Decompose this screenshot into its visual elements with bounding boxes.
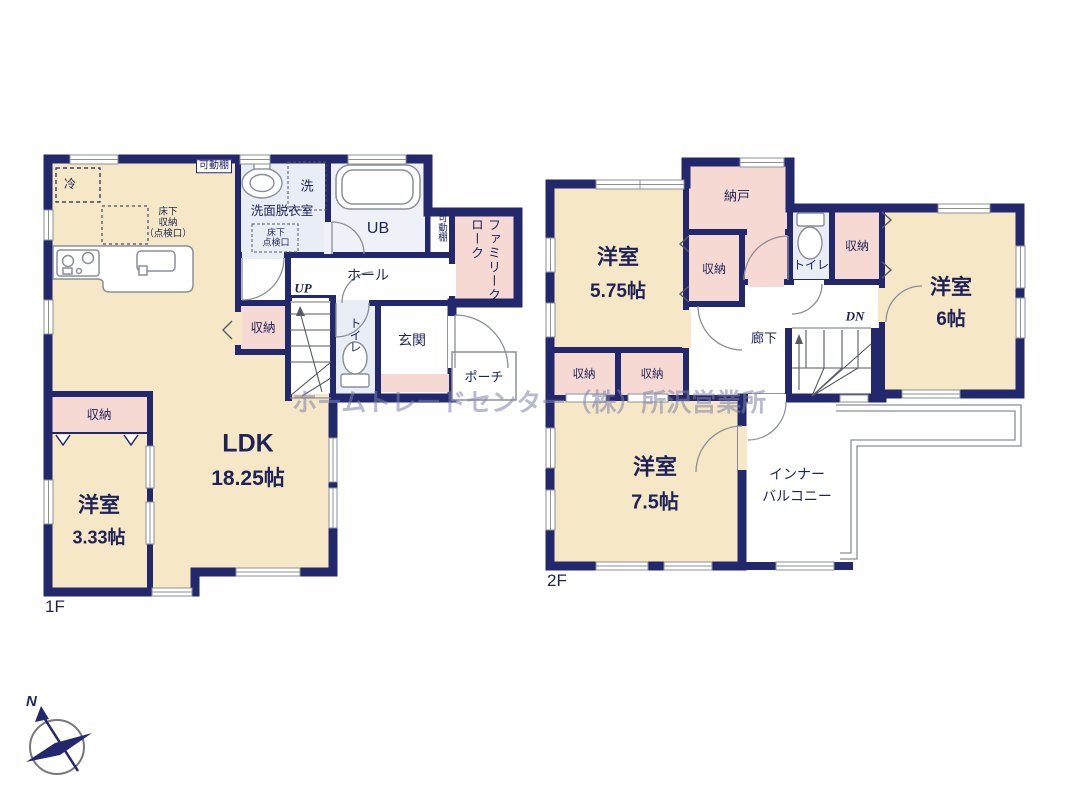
dn-label: DN xyxy=(846,310,865,325)
nando-lower xyxy=(742,232,790,282)
compass-north-label: N xyxy=(26,693,37,710)
closet-c-label: 収納 xyxy=(573,368,596,381)
shelf-side-label: 可動棚 xyxy=(434,213,448,257)
yoshitsu333-name: 洋室 xyxy=(78,494,120,518)
underfloor-line3: （点検口） xyxy=(144,229,192,240)
yoshitsu6-size: 6帖 xyxy=(936,309,966,331)
ldk-name: LDK xyxy=(222,430,273,459)
closet-right-label: 収納 xyxy=(845,240,869,254)
family-cloak-label: ファミリークローク xyxy=(468,218,502,302)
closet-mid-label: 収納 xyxy=(250,321,275,335)
ub-label: UB xyxy=(367,220,389,238)
floor1-label: 1F xyxy=(45,597,65,617)
balcony-line1: インナー xyxy=(762,463,832,485)
balcony-line2: バルコニー xyxy=(762,485,832,507)
floor2-geometry xyxy=(546,158,1025,570)
hall-label: ホール xyxy=(347,267,389,283)
yoshitsu333-closet-label: 収納 xyxy=(86,408,111,422)
inspection-line1: 床下 xyxy=(262,228,289,238)
genkan-label: 玄関 xyxy=(398,332,426,348)
senmen-label: 洗面脱衣室 xyxy=(251,204,314,218)
yoshitsu6-room xyxy=(882,208,1020,394)
floorplan-page: ホームトレードセンター（株）所沢営業所 冷 可動棚 床下 収納 （点検口） 洗 … xyxy=(0,0,1067,800)
yoshitsu333-size: 3.33帖 xyxy=(72,528,125,549)
toilet1f-label: トイレ xyxy=(347,317,364,377)
underfloor-storage-label: 床下 収納 （点検口） xyxy=(144,208,192,241)
laundry-label: 洗 xyxy=(300,180,313,195)
balcony-label: インナー バルコニー xyxy=(762,463,832,507)
bathtub-icon xyxy=(336,165,420,209)
closet-d-label: 収納 xyxy=(641,368,664,381)
balcony-outline xyxy=(836,405,1021,559)
inspection-line2: 点検口 xyxy=(262,238,289,248)
nando-label: 納戸 xyxy=(724,190,750,205)
inspection-label: 床下 点検口 xyxy=(262,228,289,249)
yoshitsu575-size: 5.75帖 xyxy=(590,281,646,303)
closet-small-label: 収納 xyxy=(702,263,726,277)
up-label: UP xyxy=(294,282,311,297)
toilet2f-icon xyxy=(797,213,824,259)
floor2-label: 2F xyxy=(547,571,567,591)
fridge-label: 冷 xyxy=(64,178,76,192)
yoshitsu75-size: 7.5帖 xyxy=(631,492,679,515)
toilet2f-label: トイレ xyxy=(793,259,829,273)
ldk-size: 18.25帖 xyxy=(211,467,285,491)
yoshitsu75-name: 洋室 xyxy=(633,454,677,479)
yoshitsu575-name: 洋室 xyxy=(597,246,639,270)
watermark: ホームトレードセンター（株）所沢営業所 xyxy=(292,383,766,419)
hallway-label: 廊下 xyxy=(751,332,777,347)
shelf-top-label: 可動棚 xyxy=(196,159,232,173)
yoshitsu75-room xyxy=(550,398,742,566)
yoshitsu6-name: 洋室 xyxy=(930,276,972,300)
compass-icon xyxy=(26,706,92,774)
